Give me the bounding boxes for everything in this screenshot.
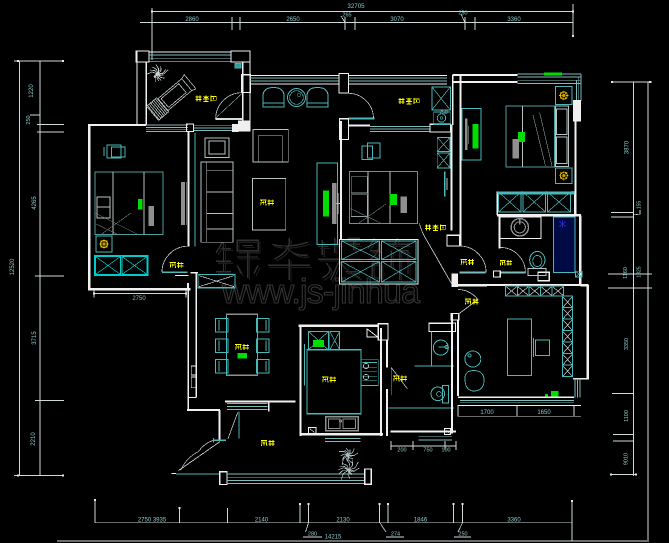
- svg-text:3870: 3870: [625, 140, 631, 154]
- svg-text:1100: 1100: [624, 410, 630, 422]
- svg-text:3070: 3070: [390, 17, 404, 23]
- svg-text:2860: 2860: [185, 17, 199, 23]
- svg-text:1160: 1160: [623, 267, 629, 279]
- svg-text:32705: 32705: [347, 3, 365, 10]
- svg-text:4265: 4265: [32, 196, 38, 210]
- svg-text:1220: 1220: [29, 84, 35, 98]
- svg-text:3360: 3360: [507, 17, 521, 23]
- svg-text:2210: 2210: [31, 432, 37, 446]
- svg-text:3715: 3715: [32, 331, 38, 345]
- svg-text:3360: 3360: [507, 518, 521, 524]
- svg-text:100: 100: [441, 448, 450, 454]
- svg-text:250: 250: [458, 11, 467, 17]
- svg-text:www.js-jinhua: www.js-jinhua: [221, 273, 420, 311]
- svg-text:750: 750: [423, 448, 432, 454]
- svg-text:12520: 12520: [10, 258, 16, 275]
- svg-text:1700: 1700: [480, 410, 494, 416]
- svg-text:1650: 1650: [537, 410, 551, 416]
- svg-text:265: 265: [342, 13, 351, 19]
- svg-text:250: 250: [26, 115, 32, 124]
- svg-text:750: 750: [439, 110, 448, 116]
- svg-text:9010: 9010: [624, 453, 630, 465]
- svg-text:2750 3935: 2750 3935: [138, 518, 167, 524]
- svg-text:2140: 2140: [255, 518, 269, 524]
- svg-text:2750: 2750: [132, 296, 146, 302]
- svg-text:2650: 2650: [286, 17, 300, 23]
- svg-text:14215: 14215: [325, 535, 342, 541]
- svg-text:3350: 3350: [624, 338, 630, 350]
- svg-text:1325: 1325: [637, 266, 643, 277]
- svg-text:1846: 1846: [414, 518, 428, 524]
- svg-text:200: 200: [397, 448, 406, 454]
- svg-text:155: 155: [637, 201, 643, 210]
- svg-text:2130: 2130: [336, 518, 350, 524]
